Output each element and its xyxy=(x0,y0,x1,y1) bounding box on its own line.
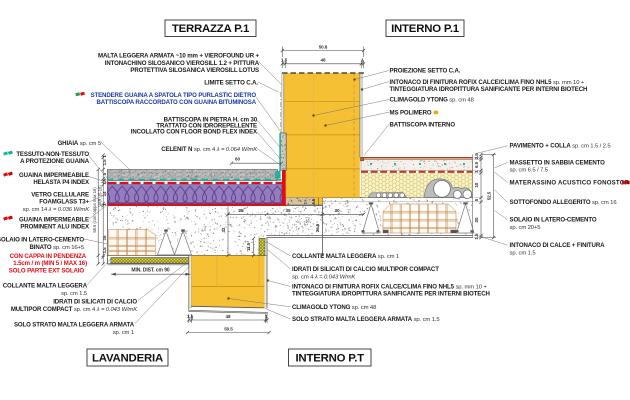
svg-text:CON CAPPA IN PENDENZA: CON CAPPA IN PENDENZA xyxy=(10,253,87,260)
svg-text:PROTETTIVA SILOSANICA VIEROSIL: PROTETTIVA SILOSANICA VIEROSILL LOTUS xyxy=(130,67,259,74)
svg-text:SOLO PARTE EXT SOLAIO: SOLO PARTE EXT SOLAIO xyxy=(9,267,85,274)
svg-text:sp. cm 1.5: sp. cm 1.5 xyxy=(61,291,88,297)
svg-text:IDRATI DI SILICATI DI CALCIO: IDRATI DI SILICATI DI CALCIO xyxy=(53,299,137,306)
svg-text:20: 20 xyxy=(474,217,479,222)
svg-text:SOLO STRATO MALTA LEGGERA ARMA: SOLO STRATO MALTA LEGGERA ARMATA sp. cm … xyxy=(292,316,440,323)
svg-text:sp. cm 20+5: sp. cm 20+5 xyxy=(510,225,542,231)
svg-text:INTERNO P.T: INTERNO P.T xyxy=(295,352,364,364)
svg-text:sp. cm 1.5: sp. cm 1.5 xyxy=(510,250,537,256)
svg-text:26.5: 26.5 xyxy=(315,223,320,232)
svg-text:LIMITE SETTO C.A.: LIMITE SETTO C.A. xyxy=(204,80,258,87)
svg-text:PAVIMENTO + COLLA sp. cm 1.5 /: PAVIMENTO + COLLA sp. cm 1.5 / 2.5 xyxy=(510,143,612,150)
svg-text:16: 16 xyxy=(102,235,107,240)
svg-text:INTONACHINO SILOSANICO VIEROSI: INTONACHINO SILOSANICO VIEROSILL 1.2 + P… xyxy=(105,60,260,67)
svg-text:GUAINA IMPERMEABILE: GUAINA IMPERMEABILE xyxy=(19,172,89,179)
svg-text:MALTA LEGGERA ARMATA ~10 mm +: MALTA LEGGERA ARMATA ~10 mm + VIEROFOUND… xyxy=(98,53,260,60)
svg-text:sp. cm 1: sp. cm 1 xyxy=(113,330,134,336)
svg-text:MULTIPOR COMPACT sp. cm 4 λ =: MULTIPOR COMPACT sp. cm 4 λ = 0.043 W/mK xyxy=(11,306,138,313)
svg-text:CELENIT N sp. cm 4 λ = 0.064 W: CELENIT N sp. cm 4 λ = 0.064 W/mK xyxy=(161,146,258,153)
svg-text:6.5: 6.5 xyxy=(474,161,479,168)
svg-text:TINTEGGIATURA IDROPITTURA SANI: TINTEGGIATURA IDROPITTURA SANIFICANTE PE… xyxy=(390,86,588,93)
svg-text:GHIAIA sp. cm 5: GHIAIA sp. cm 5 xyxy=(58,140,102,147)
svg-text:50.5: 50.5 xyxy=(224,326,233,331)
svg-text:MASSETTO IN SABBIA CEMENTO: MASSETTO IN SABBIA CEMENTO xyxy=(510,159,606,166)
svg-text:11.5: 11.5 xyxy=(246,242,251,251)
svg-text:A PROTEZIONE GUAINA: A PROTEZIONE GUAINA xyxy=(20,158,90,165)
svg-text:VAR. (5-16): VAR. (5-16) xyxy=(97,185,102,207)
svg-text:30: 30 xyxy=(335,208,340,213)
svg-text:CLIMAGOLD YTONG sp. cm 48: CLIMAGOLD YTONG sp. cm 48 xyxy=(390,97,475,104)
svg-text:60: 60 xyxy=(235,157,240,162)
svg-text:1.5: 1.5 xyxy=(102,247,107,254)
svg-text:sp. cm 4 λ = 0.043 W/mK: sp. cm 4 λ = 0.043 W/mK xyxy=(292,274,356,280)
svg-text:BINATO sp. cm 16+5: BINATO sp. cm 16+5 xyxy=(29,244,84,251)
svg-text:50.8: 50.8 xyxy=(319,44,328,49)
svg-text:58.5 (con cappa max 16): 58.5 (con cappa max 16) xyxy=(92,187,97,233)
svg-text:25: 25 xyxy=(239,208,244,213)
svg-text:INTERNO P.1: INTERNO P.1 xyxy=(391,23,460,35)
svg-text:sp. cm 6.5 / 7.5: sp. cm 6.5 / 7.5 xyxy=(510,168,549,174)
svg-text:SOLO STRATO MALTA LEGGERA ARMA: SOLO STRATO MALTA LEGGERA ARMATA xyxy=(14,322,135,329)
svg-text:COLLANTE MALTA LEGGERA sp. cm: COLLANTE MALTA LEGGERA sp. cm 1 xyxy=(292,253,399,260)
svg-text:INTONACO DI CALCE + FINITURA: INTONACO DI CALCE + FINITURA xyxy=(510,242,606,249)
svg-text:sp. cm 14 λ = 0.036 W/mK: sp. cm 14 λ = 0.036 W/mK xyxy=(23,207,91,213)
svg-text:48: 48 xyxy=(321,57,326,62)
svg-text:STENDERE GUAINA A SPATOLA TIPO: STENDERE GUAINA A SPATOLA TIPO PURLASTIC… xyxy=(91,92,257,99)
svg-text:CLIMAGOLD YTONG sp. cm 48: CLIMAGOLD YTONG sp. cm 48 xyxy=(292,304,377,311)
svg-text:SOTTOFONDO ALLEGERITO sp. cm 1: SOTTOFONDO ALLEGERITO sp. cm 16 xyxy=(510,199,618,206)
svg-text:1.5: 1.5 xyxy=(102,178,107,185)
svg-text:10: 10 xyxy=(474,182,479,187)
svg-text:1.5: 1.5 xyxy=(102,159,107,166)
svg-text:32: 32 xyxy=(221,227,226,232)
svg-text:INTONACO DI FINITURA ROFIX CAL: INTONACO DI FINITURA ROFIX CALCE/CLIMA F… xyxy=(390,79,585,86)
svg-text:MIN. DIST. cm 90: MIN. DIST. cm 90 xyxy=(131,267,169,273)
svg-text:35: 35 xyxy=(286,208,291,213)
svg-text:48: 48 xyxy=(226,314,231,319)
svg-text:PROMINENT ALU INDEX: PROMINENT ALU INDEX xyxy=(20,224,90,231)
svg-text:MS POLIMERO: MS POLIMERO xyxy=(390,109,432,116)
svg-text:2.5: 2.5 xyxy=(474,153,479,160)
svg-text:INTONACO DI FINITURA ROFIX CAL: INTONACO DI FINITURA ROFIX CALCE/CLIMA F… xyxy=(292,283,487,290)
svg-text:1.5: 1.5 xyxy=(281,57,288,62)
svg-text:SOLAIO IN LATERO-CEMENTO: SOLAIO IN LATERO-CEMENTO xyxy=(0,237,84,244)
svg-text:IDRATI DI SILICATI DI CALCIO M: IDRATI DI SILICATI DI CALCIO MULTIPOR CO… xyxy=(292,266,439,273)
svg-text:SOLAIO IN LATERO-CEMENTO: SOLAIO IN LATERO-CEMENTO xyxy=(510,217,597,224)
svg-text:4.5: 4.5 xyxy=(311,198,316,205)
svg-text:1.5cm / m (MIN 5 / MAX 16): 1.5cm / m (MIN 5 / MAX 16) xyxy=(13,260,87,267)
svg-text:GUAINA IMPERMEABILE: GUAINA IMPERMEABILE xyxy=(19,216,89,223)
svg-text:FOAMGLASS T3+: FOAMGLASS T3+ xyxy=(39,199,89,206)
svg-text:BATTISCOPA INTERNO: BATTISCOPA INTERNO xyxy=(390,121,456,128)
svg-text:PROIEZIONE SETTO C.A.: PROIEZIONE SETTO C.A. xyxy=(390,68,461,75)
svg-text:MATERASSINO ACUSTICO FONOSTOP: MATERASSINO ACUSTICO FONOSTOP xyxy=(510,179,629,186)
svg-text:VETRO CELLULARE: VETRO CELLULARE xyxy=(31,191,89,198)
svg-text:1.5: 1.5 xyxy=(187,314,194,319)
svg-text:HELASTA P4 INDEX: HELASTA P4 INDEX xyxy=(33,179,90,186)
svg-text:INCOLLATO CON FLOOR BOND FLEX: INCOLLATO CON FLOOR BOND FLEX INDEX xyxy=(131,129,258,136)
svg-text:LAVANDERIA: LAVANDERIA xyxy=(92,352,163,364)
svg-text:TERRAZZA P.1: TERRAZZA P.1 xyxy=(172,23,250,35)
svg-text:TINTEGGIATURA IDROPITTURA SANI: TINTEGGIATURA IDROPITTURA SANIFICANTE PE… xyxy=(292,291,490,298)
svg-text:1.5: 1.5 xyxy=(474,233,479,240)
svg-text:COLLANTE MALTA LEGGERA: COLLANTE MALTA LEGGERA xyxy=(3,283,88,290)
svg-text:BATTISCOPA RACCORDATO CON GUAI: BATTISCOPA RACCORDATO CON GUAINA BITUMIN… xyxy=(97,99,257,106)
svg-text:52.5: 52.5 xyxy=(487,191,492,200)
svg-text:TESSUTO-NON-TESSUTO: TESSUTO-NON-TESSUTO xyxy=(16,151,89,158)
